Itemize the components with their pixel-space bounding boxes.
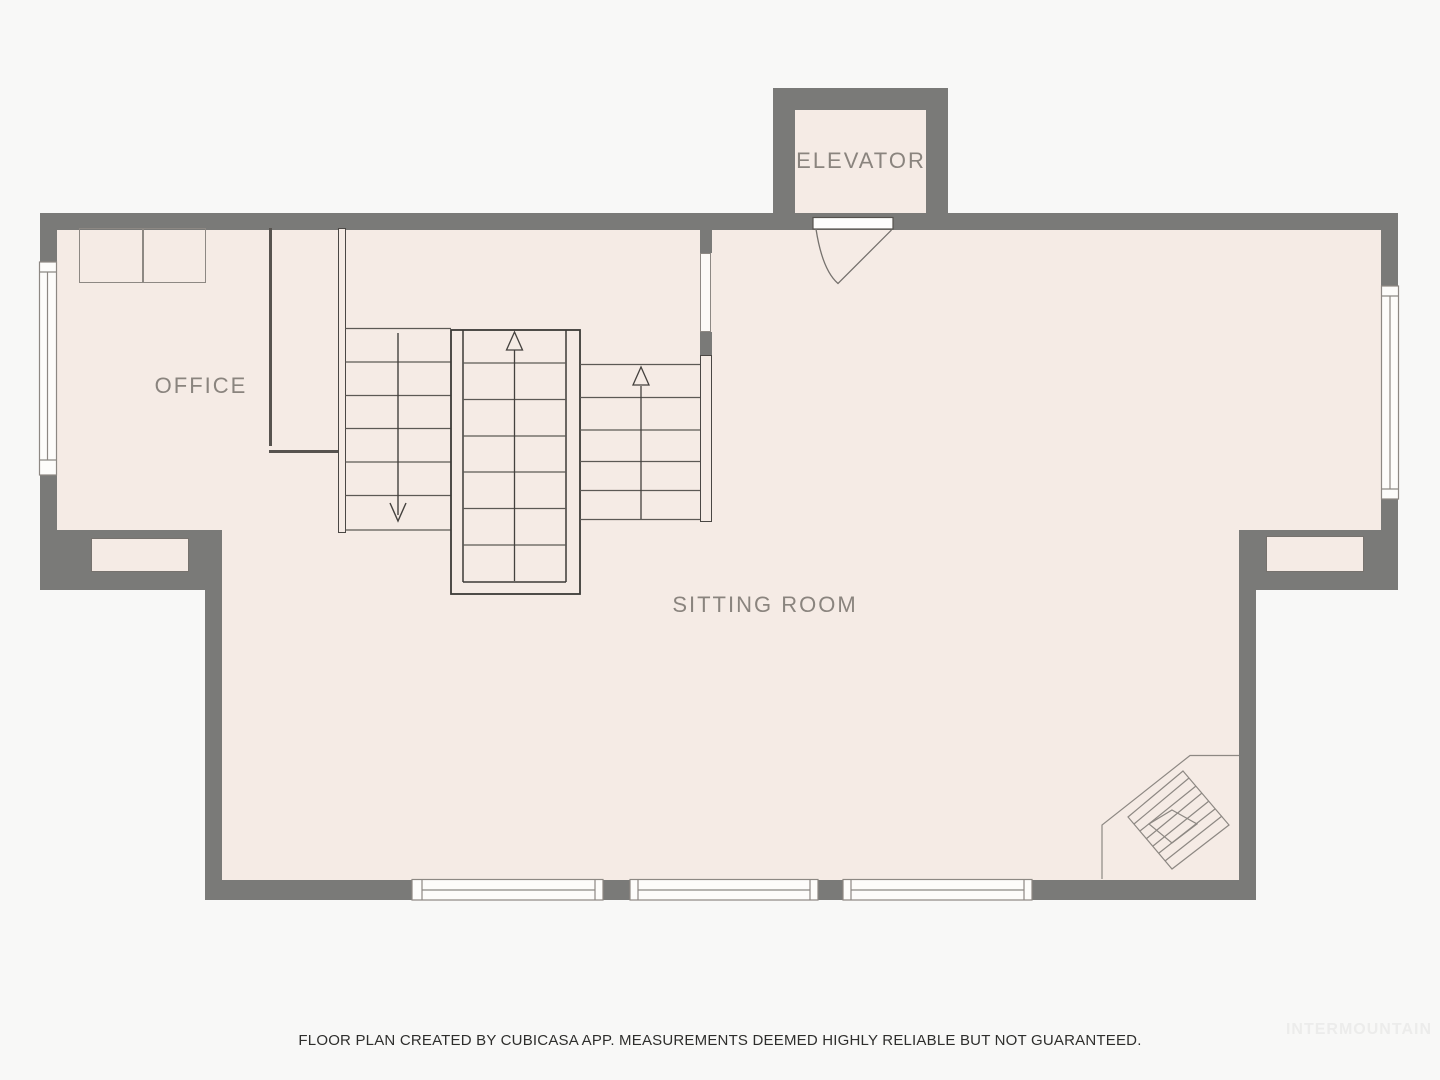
- floor-top-band: [57, 230, 1381, 532]
- wall-left-lower: [205, 588, 222, 900]
- disclaimer-text: FLOOR PLAN CREATED BY CUBICASA APP. MEAS…: [0, 1032, 1440, 1049]
- wall-niche-left: [91, 538, 189, 572]
- wall-elevator-right: [926, 88, 948, 230]
- wall-elevator-top: [773, 88, 948, 110]
- wall-left: [40, 213, 57, 532]
- floor-sitting-room: [222, 530, 1239, 880]
- wall-niche-right: [1266, 536, 1364, 572]
- office-partition-return: [269, 450, 345, 453]
- elevator-label: ELEVATOR: [796, 148, 926, 174]
- wall-right-lower: [1239, 570, 1256, 900]
- wall-right: [1381, 213, 1398, 590]
- stair-side-wall-left: [338, 228, 346, 533]
- stair-side-wall-right: [700, 355, 712, 522]
- wall-stub-upper: [700, 227, 712, 253]
- wall-top: [40, 213, 1398, 230]
- sitting-room-label: SITTING ROOM: [672, 592, 857, 618]
- wall-elevator-left: [773, 88, 795, 230]
- office-label: OFFICE: [155, 373, 248, 399]
- watermark-text: INTERMOUNTAIN: [1286, 1021, 1432, 1039]
- office-cabinet-divider: [142, 228, 144, 283]
- pocket-door: [700, 253, 711, 332]
- wall-stub-lower: [700, 332, 712, 355]
- wall-bottom: [205, 880, 1256, 900]
- floor-plan-canvas: OFFICE SITTING ROOM ELEVATOR FLOOR PLAN …: [0, 0, 1440, 1080]
- office-partition-wall: [269, 228, 272, 446]
